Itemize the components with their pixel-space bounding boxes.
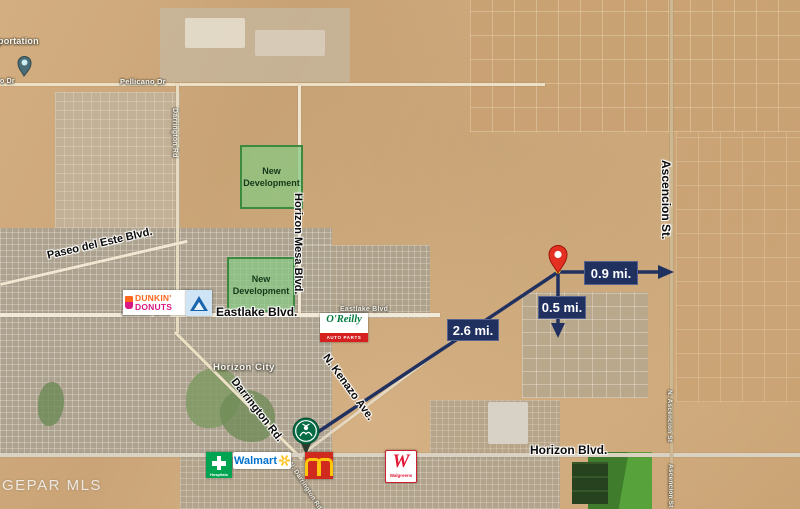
distance-badge-east: 0.9 mi. <box>584 261 638 285</box>
distance-badge-southwest: 2.6 mi. <box>447 319 499 341</box>
mcdonalds-logo <box>305 452 333 479</box>
distance-badge-label: 0.9 mi. <box>591 266 631 281</box>
distance-badge-label: 2.6 mi. <box>453 323 493 338</box>
road-label-horizon-blvd: Horizon Blvd. <box>530 443 607 457</box>
dunkin-cup-icon <box>125 296 133 309</box>
hospital-logo: Hospitals <box>206 452 232 478</box>
distance-line-southwest <box>318 272 558 432</box>
aerial-map-canvas: portation o Dr Pellicano Dr Darrington R… <box>0 0 800 509</box>
hospital-cross-icon <box>217 456 222 470</box>
blue-triangle-icon <box>190 296 208 311</box>
arrowhead-east-icon <box>658 265 674 279</box>
road-label-horizon-mesa: Horizon Mesa Blvd. <box>292 193 304 294</box>
arrowhead-south-icon <box>551 323 565 338</box>
gepar-mls-watermark: GEPAR MLS <box>2 477 102 494</box>
distance-badge-south: 0.5 mi. <box>538 296 586 319</box>
walmart-wordmark: Walmart <box>234 455 277 467</box>
hospital-subtext: Hospitals <box>206 472 232 477</box>
oreilly-auto-parts-logo: O'Reilly AUTO PARTS <box>320 313 368 342</box>
walgreens-wordmark: Walgreens <box>390 473 413 478</box>
walmart-logo: Walmart <box>233 452 291 469</box>
blue-triangle-logo <box>186 290 212 316</box>
transportation-pin-icon <box>18 57 31 76</box>
dunkin-donuts-logo: DUNKIN' DONUTS <box>123 290 189 315</box>
oreilly-wordmark: O'Reilly <box>326 315 362 325</box>
distance-badge-label: 0.5 mi. <box>542 300 582 315</box>
starbucks-siren-icon <box>292 417 320 457</box>
oreilly-subtext: AUTO PARTS <box>327 335 362 340</box>
walmart-spark-icon <box>279 455 290 466</box>
distance-lines-overlay <box>0 0 800 509</box>
road-label-ascencion: Ascencion St. <box>659 160 673 239</box>
subject-property-pin-icon <box>549 246 567 274</box>
golden-arches-icon <box>317 458 333 476</box>
walgreens-w-icon: W <box>393 451 410 472</box>
road-label-eastlake: Eastlake Blvd. <box>216 305 297 319</box>
walgreens-logo: W Walgreens <box>385 450 417 483</box>
starbucks-logo <box>292 417 320 457</box>
dunkin-wordmark-line2: DONUTS <box>135 303 172 312</box>
